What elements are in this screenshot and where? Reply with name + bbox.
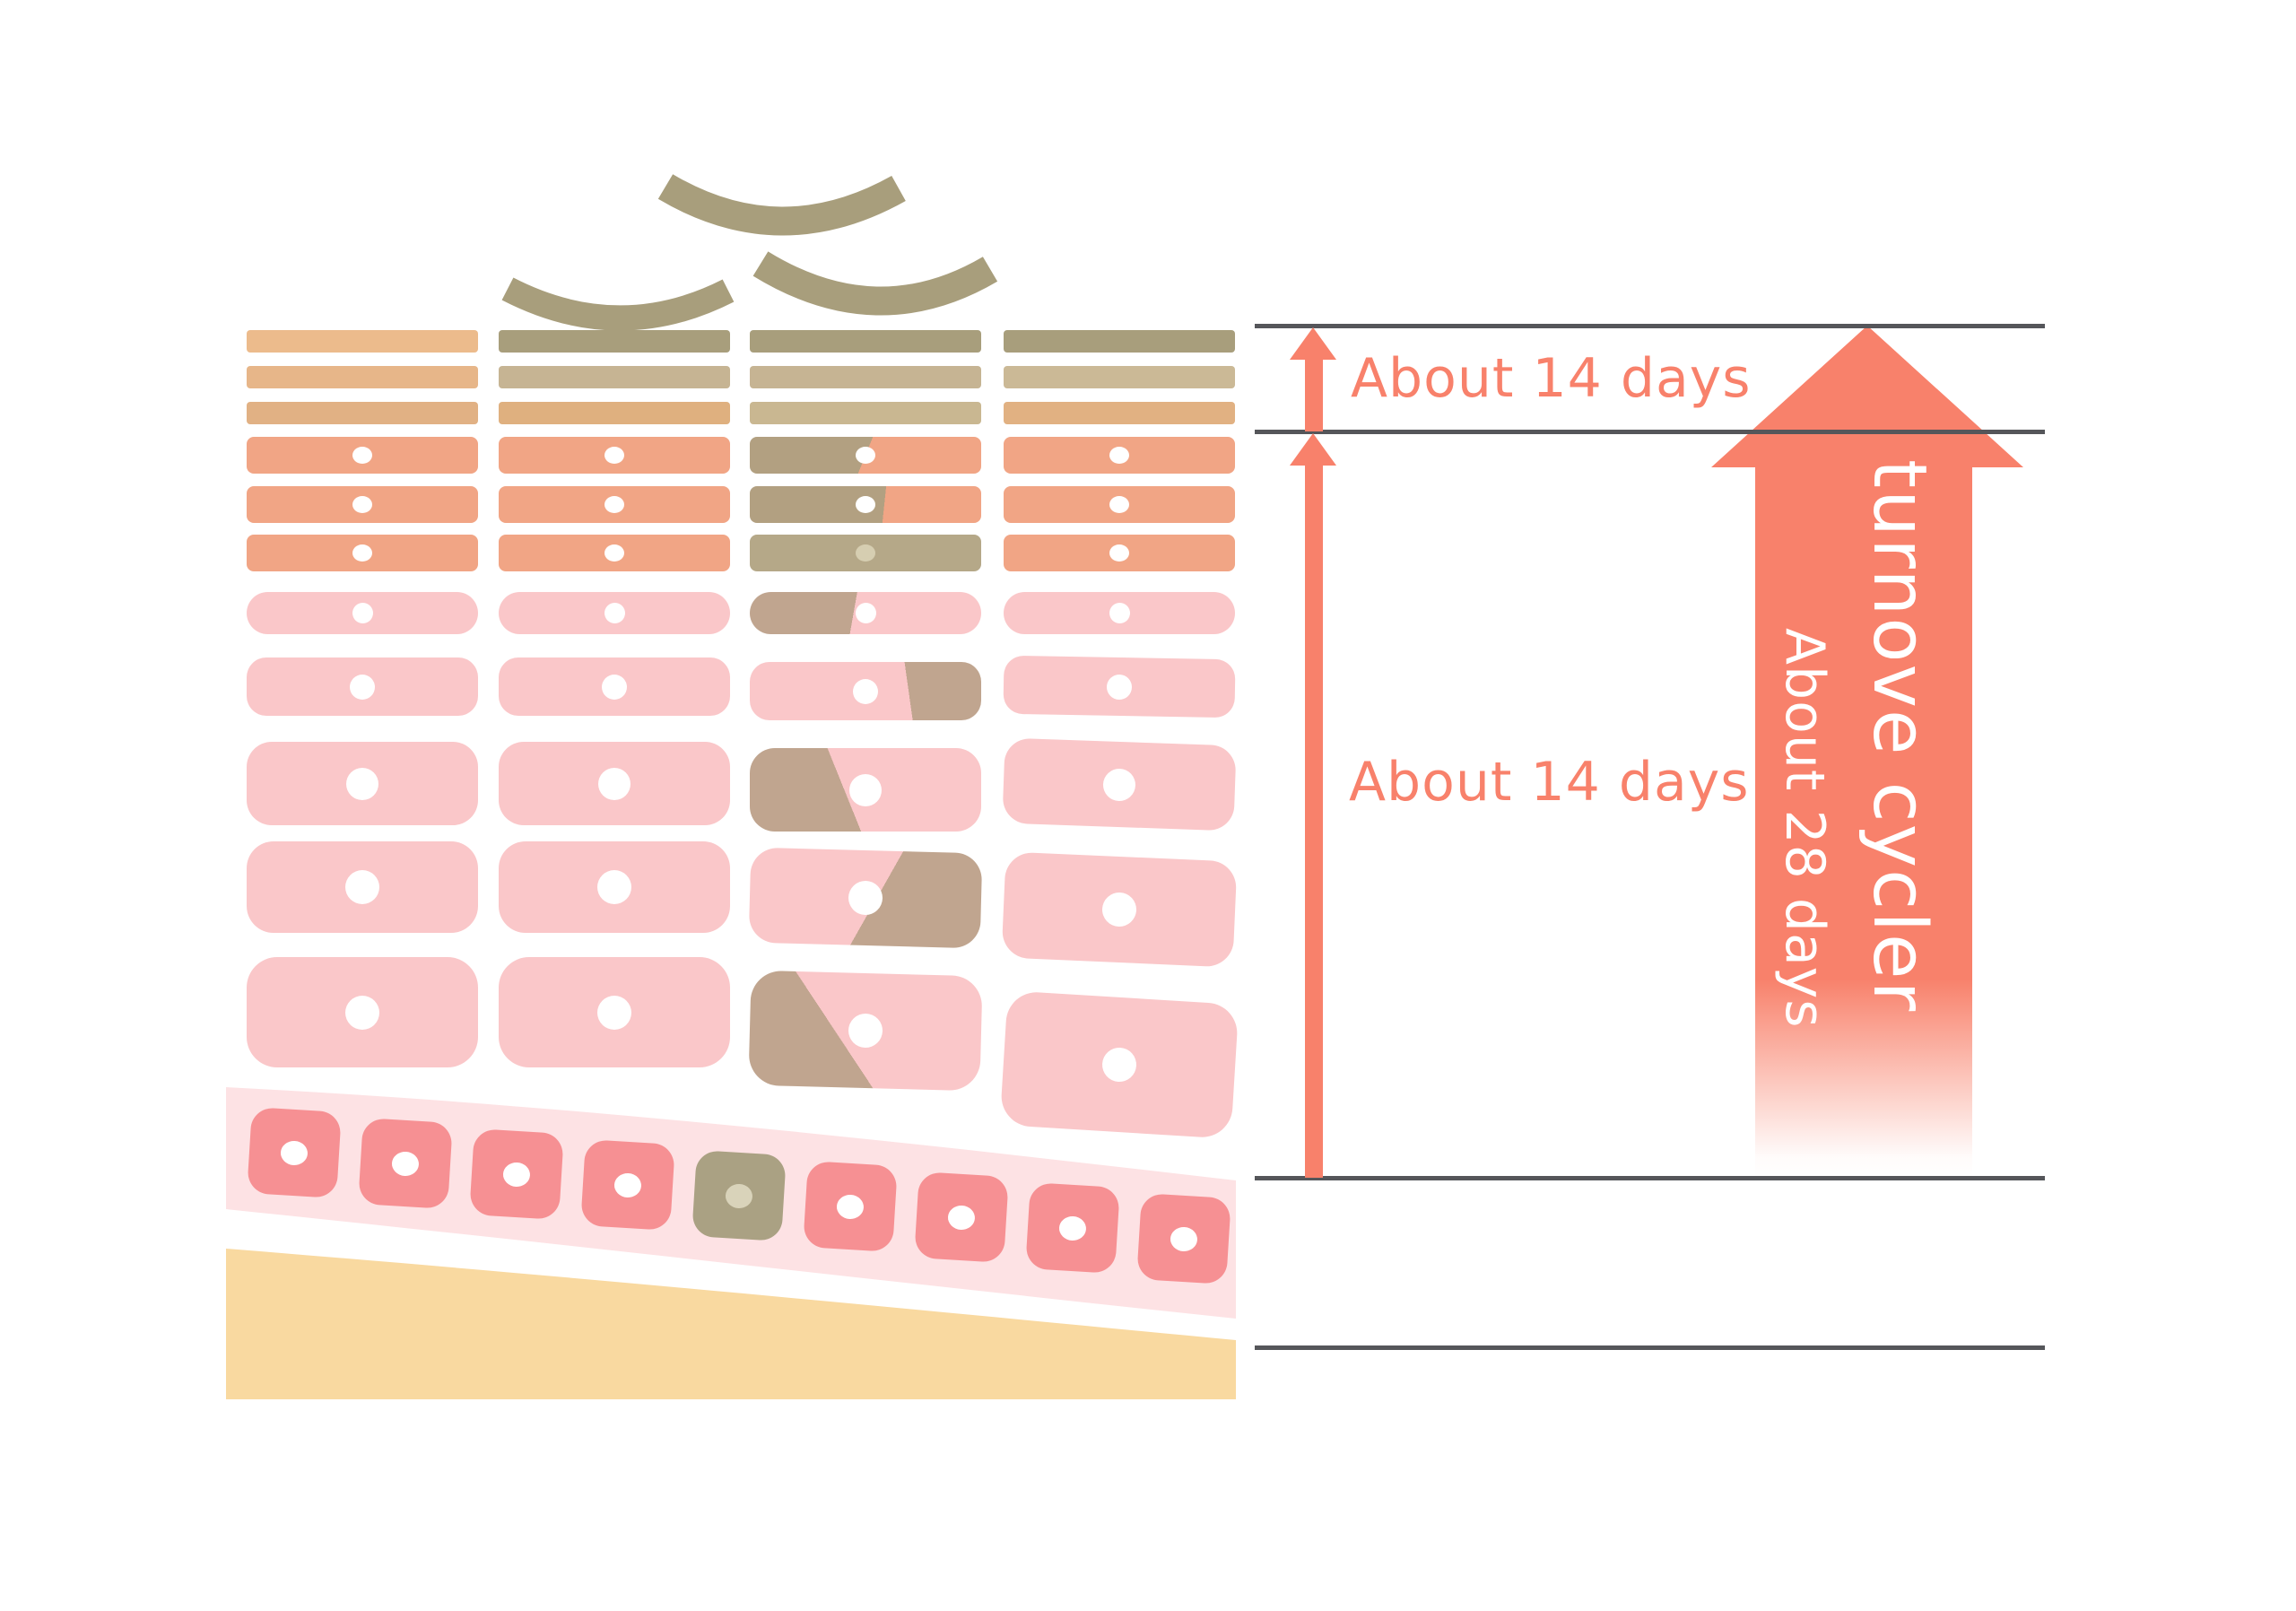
cell-nucleus [853,679,878,704]
skin-cell [749,848,983,949]
skin-cell [247,1107,342,1198]
skin-cell [1004,535,1235,571]
skin-cell [247,535,478,571]
cell-nucleus [604,603,625,623]
skin-cell [247,486,478,523]
cell-nucleus [604,496,624,513]
guide-line-corneum-bottom [1255,430,2045,434]
skin-cell [1002,738,1236,832]
cell-nucleus [352,544,372,562]
cell-nucleus [1109,603,1130,623]
short-measure-arrow-head-icon [1290,327,1336,360]
cell-nucleus [604,544,624,562]
cell-nucleus [352,496,372,513]
cell-nucleus [346,768,378,800]
cell-nucleus [613,1172,642,1198]
skin-cell [748,971,982,1092]
cell-nucleus [856,544,875,562]
cell-nucleus [1170,1226,1198,1252]
cell-nucleus [597,870,631,904]
skin-cell [750,662,981,720]
skin-flake-icon [665,187,899,222]
skin-cell [1000,990,1239,1138]
cell-nucleus [1107,674,1132,699]
skin-cell [691,1150,787,1241]
skin-cell [580,1139,675,1231]
cell-nucleus [856,496,875,513]
cell-nucleus [1101,1047,1137,1083]
skin-cell [750,330,981,353]
skin-flake-icon [508,289,728,318]
skin-turnover-diagram: About 14 days About 14 days turnove cycl… [0,0,2296,1611]
long-measure-arrow-head-icon [1290,433,1336,466]
cell-nucleus [725,1183,753,1209]
skin-cell [1025,1182,1120,1274]
guide-line-dermis [1255,1345,2045,1350]
skin-cell [750,748,981,832]
cell-nucleus [602,675,627,700]
turnover-cycle-subtitle: About 28 days [1778,628,1831,1029]
skin-cell [247,437,478,474]
cell-nucleus [856,447,875,464]
cell-nucleus [1102,768,1135,801]
cell-nucleus [280,1140,309,1166]
skin-flake-icon [761,264,990,301]
skin-cell [499,841,730,933]
skin-cell [499,366,730,388]
skin-cell [499,742,730,825]
skin-cell [499,486,730,523]
cell-nucleus [849,774,882,806]
skin-cell [750,366,981,388]
skin-cell [499,402,730,424]
long-measure-arrow-shaft [1305,466,1323,1178]
skin-cell [1003,656,1235,718]
skin-cell [499,657,730,716]
skin-cell [247,366,478,388]
cell-nucleus [345,870,379,904]
cell-nucleus [947,1205,976,1231]
skin-cell [750,437,981,474]
cell-nucleus [604,447,624,464]
cell-nucleus [848,1014,883,1049]
skin-cell [1002,851,1238,967]
cell-nucleus [597,996,631,1030]
skin-cell [499,535,730,571]
skin-cell [914,1171,1009,1263]
cell-nucleus [1101,892,1137,927]
skin-cell [499,592,730,634]
cell-nucleus [502,1162,531,1188]
skin-cell [247,402,478,424]
cell-nucleus [345,996,379,1030]
turnover-arrow-head [1711,326,2023,467]
cell-nucleus [598,768,631,800]
skin-cell [1004,486,1235,523]
skin-cell [247,592,478,634]
skin-cell [1004,437,1235,474]
cell-nucleus [1109,544,1129,562]
skin-cell [1004,402,1235,424]
skin-cell [358,1118,453,1209]
guide-line-basal [1255,1176,2045,1180]
skin-cell [750,486,981,523]
skin-cell [803,1161,898,1252]
cell-nucleus [848,881,883,916]
cell-nucleus [350,675,375,700]
skin-cell [1136,1193,1231,1284]
skin-cell [247,330,478,353]
skin-cell [247,957,478,1067]
cell-nucleus [856,603,876,623]
top-duration-label: About 14 days [1351,348,1752,410]
middle-duration-label: About 14 days [1349,752,1750,814]
cell-nucleus [352,447,372,464]
skin-cell [499,957,730,1067]
skin-cell [1004,592,1235,634]
skin-cell [750,592,981,634]
guide-line-surface [1255,324,2045,328]
cell-nucleus [1109,447,1129,464]
cell-nucleus [836,1194,865,1220]
skin-cell [247,657,478,716]
skin-cell [247,841,478,933]
cell-nucleus [391,1151,420,1177]
cell-nucleus [1109,496,1129,513]
skin-cell [750,535,981,571]
cell-nucleus [352,603,373,623]
skin-cell [1004,366,1235,388]
skin-cell [1004,330,1235,353]
short-measure-arrow-shaft [1305,358,1323,431]
turnover-cycle-title: turnove cycler [1862,459,1935,1013]
cell-nucleus [1058,1215,1087,1241]
skin-cell [499,437,730,474]
skin-cell [499,330,730,353]
skin-cell [247,742,478,825]
skin-cell [750,402,981,424]
skin-cell [469,1128,564,1220]
